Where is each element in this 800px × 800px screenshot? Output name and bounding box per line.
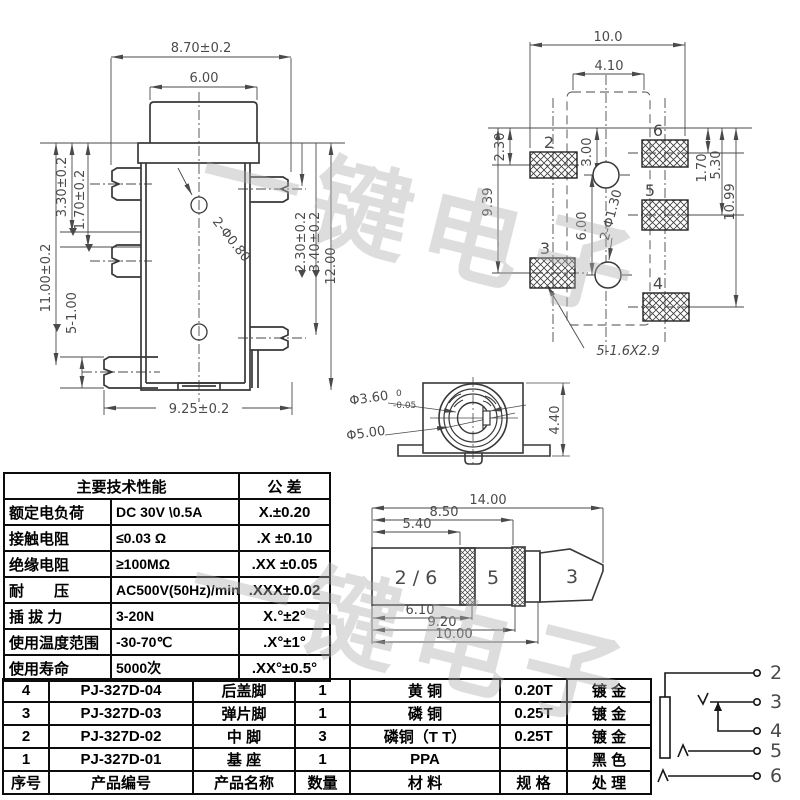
dim-w-hat: 6.00 [190,71,219,86]
dim-plug-1400: 14.00 [469,493,506,508]
dim-dia-inner: Φ3.60 [348,389,389,409]
spec-tol: X.°±2° [239,603,330,629]
spec-tol: .X ±0.10 [239,525,330,551]
terminal-6-label: 6 [770,765,782,787]
part-material: 磷铜（T T） [350,725,500,748]
spec-tol: .XX ±0.05 [239,551,330,577]
plug-seg-26: 2 / 6 [395,567,438,589]
part-finish: 镀 金 [567,725,651,748]
dim-pcb-939: 9.39 [481,188,496,217]
dim-330: 3.30±0.2 [55,157,70,218]
spec-tol: .XXX±0.02 [239,577,330,603]
spec-name: 耐 压 [4,577,111,603]
dim-plug-850: 8.50 [430,505,459,520]
pad-4-label: 4 [653,274,663,293]
terminal-5-label: 5 [770,740,782,762]
spec-row: 额定电负荷 DC 30V \0.5A X.±0.20 [4,499,330,525]
spec-tol: X.±0.20 [239,499,330,525]
parts-footer-spec: 规 格 [500,771,567,794]
parts-footer-finish: 处 理 [567,771,651,794]
part-spec: 0.20T [500,679,567,702]
dim-pcb-230: 2.30 [493,133,508,162]
spec-value: 3-20N [111,603,239,629]
dim-pcb-170: 1.70 [695,154,710,183]
schematic-drawing: 2 3 4 5 6 [640,645,800,800]
part-finish: 镀 金 [567,679,651,702]
part-spec: 0.25T [500,702,567,725]
spec-name: 使用温度范围 [4,629,111,655]
terminal-2-label: 2 [770,662,782,684]
plug-drawing: 2 / 6 5 3 14.00 8.50 5.40 6.10 9.20 10.0… [360,495,650,655]
part-number: PJ-327D-01 [49,748,193,771]
part-qty: 3 [295,725,350,748]
pad-6-label: 6 [653,121,663,140]
parts-footer-name: 产品名称 [193,771,295,794]
spec-value: DC 30V \0.5A [111,499,239,525]
dim-dia-inner-tol-lower: -0.05 [393,401,416,411]
spec-tol: .X°±1° [239,629,330,655]
dim-340: 3.40±0.2 [308,212,323,273]
dim-pcb-300: 3.00 [580,138,595,167]
dim-pcb-w: 10.0 [594,30,623,45]
spec-header-main: 主要技术性能 [4,473,239,499]
part-qty: 1 [295,702,350,725]
part-no-index: 4 [3,679,49,702]
part-no-index: 1 [3,748,49,771]
dim-holes: 2-Φ0.80 [209,215,253,265]
spec-value: ≥100MΩ [111,551,239,577]
plug-seg-5: 5 [487,567,499,589]
dim-pcb-1099: 10.99 [723,183,738,220]
parts-row: 1 PJ-327D-01 基 座 1 PPA 黑 色 [3,748,651,771]
parts-footer-no: 序号 [3,771,49,794]
part-finish: 黑 色 [567,748,651,771]
pad-size-note: 5-1.6X2.9 [596,344,659,359]
dim-170: 1.70±0.2 [73,170,88,231]
dim-230: 2.30±0.2 [294,212,309,273]
dim-1200: 12.00 [324,247,339,284]
dim-front-height: 4.40 [548,406,563,435]
parts-footer-part-number: 产品编号 [49,771,193,794]
spec-row: 绝缘电阻 ≥100MΩ .XX ±0.05 [4,551,330,577]
pcb-layout-drawing: 2 6 5 3 4 10.0 4.10 2.30 9.39 3.00 6.00 … [460,30,800,375]
parts-table: 4 PJ-327D-04 后盖脚 1 黄 铜 0.20T 镀 金 3 PJ-32… [2,678,652,795]
part-material: 磷 铜 [350,702,500,725]
part-spec: 0.25T [500,725,567,748]
spec-header-row: 主要技术性能 公 差 [4,473,330,499]
parts-footer-qty: 数量 [295,771,350,794]
dim-pcb-inner: 4.10 [595,59,624,74]
dim-plug-540: 5.40 [403,517,432,532]
dim-5-100: 5-1.00 [65,292,80,334]
spec-row: 插 拔 力 3-20N X.°±2° [4,603,330,629]
spec-name: 插 拔 力 [4,603,111,629]
part-name: 中 脚 [193,725,295,748]
pad-3-label: 3 [540,239,550,258]
spec-table: 主要技术性能 公 差 额定电负荷 DC 30V \0.5A X.±0.20 接触… [3,472,331,682]
part-no-index: 2 [3,725,49,748]
dim-w-top: 8.70±0.2 [171,41,232,56]
part-number: PJ-327D-02 [49,725,193,748]
pad-5-label: 5 [645,181,655,200]
dim-plug-1000: 10.00 [435,627,472,642]
spec-value: -30-70℃ [111,629,239,655]
spec-name: 额定电负荷 [4,499,111,525]
part-name: 弹片脚 [193,702,295,725]
dim-pcb-holes: 2-Φ1.30 [598,188,626,242]
parts-row: 4 PJ-327D-04 后盖脚 1 黄 铜 0.20T 镀 金 [3,679,651,702]
spec-row: 接触电阻 ≤0.03 Ω .X ±0.10 [4,525,330,551]
dim-pcb-530: 5.30 [709,151,724,180]
spec-name: 绝缘电阻 [4,551,111,577]
dim-1100: 11.00±0.2 [39,244,54,313]
terminal-3-label: 3 [770,691,782,713]
part-material: PPA [350,748,500,771]
terminal-4-label: 4 [770,720,782,742]
side-view-drawing: 8.70±0.2 6.00 3.30±0.2 1.70±0.2 11.00±0.… [0,30,350,460]
datasheet-page: 8.70±0.2 6.00 3.30±0.2 1.70±0.2 11.00±0.… [0,0,800,800]
part-qty: 1 [295,679,350,702]
spec-value: AC500V(50Hz)/min [111,577,239,603]
part-name: 基 座 [193,748,295,771]
front-view-drawing: Φ3.60 0 -0.05 Φ5.00 4.40 [330,365,615,500]
spec-value: ≤0.03 Ω [111,525,239,551]
part-number: PJ-327D-04 [49,679,193,702]
parts-footer-row: 序号 产品编号 产品名称 数量 材 料 规 格 处 理 [3,771,651,794]
spec-name: 接触电阻 [4,525,111,551]
parts-footer-material: 材 料 [350,771,500,794]
dim-dia-outer: Φ5.00 [345,424,386,444]
spec-row: 使用温度范围 -30-70℃ .X°±1° [4,629,330,655]
part-number: PJ-327D-03 [49,702,193,725]
pad-2-label: 2 [544,133,554,152]
part-finish: 镀 金 [567,702,651,725]
spec-header-tol: 公 差 [239,473,330,499]
part-no-index: 3 [3,702,49,725]
part-material: 黄 铜 [350,679,500,702]
part-spec [500,748,567,771]
dim-w-bottom: 9.25±0.2 [169,402,230,417]
parts-row: 2 PJ-327D-02 中 脚 3 磷铜（T T） 0.25T 镀 金 [3,725,651,748]
plug-seg-3: 3 [566,566,578,588]
dim-pcb-600: 6.00 [575,212,590,241]
part-name: 后盖脚 [193,679,295,702]
spec-row: 耐 压 AC500V(50Hz)/min .XXX±0.02 [4,577,330,603]
dim-dia-inner-tol-upper: 0 [396,389,402,399]
part-qty: 1 [295,748,350,771]
parts-row: 3 PJ-327D-03 弹片脚 1 磷 铜 0.25T 镀 金 [3,702,651,725]
